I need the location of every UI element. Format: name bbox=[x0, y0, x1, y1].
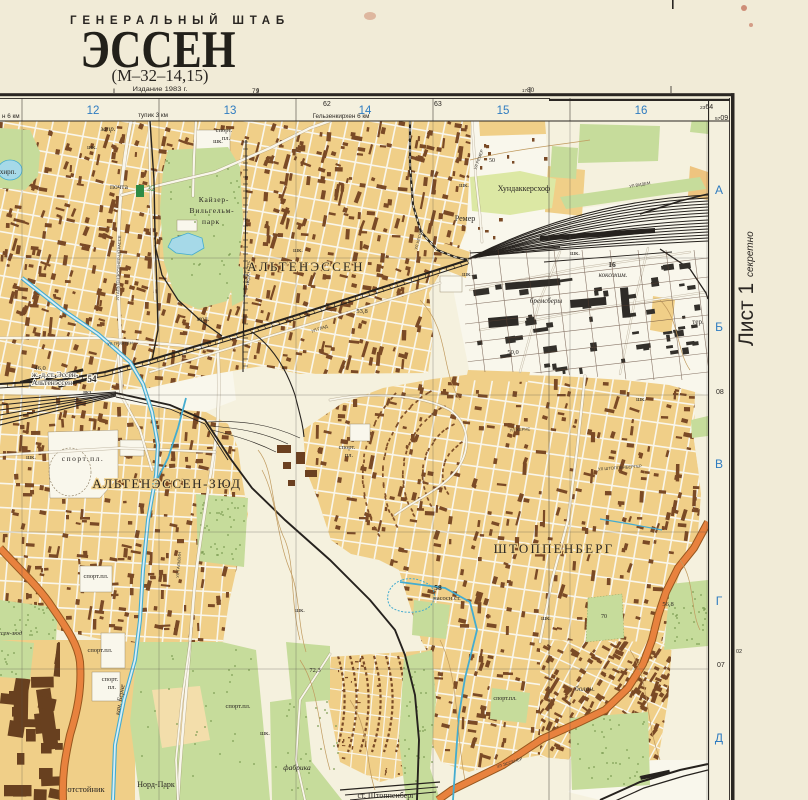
svg-text:Г: Г bbox=[716, 594, 723, 608]
svg-text:08: 08 bbox=[716, 389, 724, 396]
svg-text:АЛЬТЕНЭССЕН: АЛЬТЕНЭССЕН bbox=[247, 259, 364, 274]
svg-text:спорт.пл.: спорт.пл. bbox=[83, 573, 108, 580]
svg-text:Издание 1983 г.: Издание 1983 г. bbox=[133, 86, 188, 93]
svg-text:В: В bbox=[715, 457, 723, 471]
svg-text:58: 58 bbox=[434, 583, 442, 592]
svg-text:запр.: запр. bbox=[100, 125, 116, 133]
svg-text:Кайзер-: Кайзер- bbox=[199, 195, 229, 204]
svg-text:63: 63 bbox=[434, 101, 442, 108]
svg-text:спорт.пл.: спорт.пл. bbox=[493, 696, 517, 702]
svg-text:Хундаккерсхоф: Хундаккерсхоф bbox=[498, 184, 550, 193]
svg-text:насосн.ст.: насосн.ст. bbox=[433, 595, 461, 602]
svg-text:шк.: шк. bbox=[26, 454, 36, 461]
svg-text:шк.: шк. bbox=[462, 271, 472, 278]
svg-text:02: 02 bbox=[736, 649, 742, 655]
svg-text:спорт.: спорт. bbox=[216, 127, 233, 134]
svg-text:пл.: пл. bbox=[108, 684, 117, 691]
svg-text:16: 16 bbox=[635, 105, 648, 117]
svg-text:46,0: 46,0 bbox=[34, 365, 45, 372]
svg-text:72,3: 72,3 bbox=[309, 667, 320, 674]
svg-text:А: А bbox=[715, 183, 723, 197]
svg-text:шк.: шк. bbox=[293, 247, 303, 254]
svg-text:07: 07 bbox=[717, 662, 725, 669]
svg-text:тупик 3 км: тупик 3 км bbox=[138, 112, 168, 119]
svg-text:Д: Д bbox=[715, 731, 723, 745]
svg-text:16: 16 bbox=[608, 260, 616, 269]
svg-text:32: 32 bbox=[147, 184, 155, 193]
svg-text:н 6 км: н 6 км bbox=[2, 113, 20, 120]
svg-text:Норд-Парк: Норд-Парк bbox=[137, 780, 175, 789]
svg-text:50: 50 bbox=[489, 158, 495, 164]
svg-text:50,0: 50,0 bbox=[507, 349, 518, 356]
svg-text:ст. Штоппенберг: ст. Штоппенберг bbox=[357, 791, 415, 800]
svg-text:шк.: шк. bbox=[570, 250, 580, 257]
svg-text:56,8: 56,8 bbox=[662, 601, 673, 608]
svg-text:пл.: пл. bbox=[222, 135, 231, 142]
svg-text:спорт.: спорт. bbox=[339, 444, 356, 451]
svg-text:шк.: шк. bbox=[459, 182, 469, 189]
svg-text:вкз.: вкз. bbox=[83, 390, 93, 396]
svg-text:мол.: мол. bbox=[196, 315, 209, 323]
svg-text:спорт.пл.: спорт.пл. bbox=[225, 703, 250, 710]
svg-text:Альтенэссен: Альтенэссен bbox=[32, 378, 72, 387]
svg-text:спорт.: спорт. bbox=[102, 676, 119, 683]
svg-text:2364: 2364 bbox=[700, 104, 713, 111]
svg-text:бремсберы: бремсберы bbox=[530, 297, 563, 305]
svg-text:1780: 1780 bbox=[522, 87, 535, 94]
svg-text:тер.: тер. bbox=[692, 318, 704, 326]
svg-text:хирп.: хирп. bbox=[0, 168, 16, 176]
svg-text:спорт.пл.: спорт.пл. bbox=[87, 647, 112, 654]
svg-text:коксохим.: коксохим. bbox=[599, 271, 628, 279]
svg-text:15: 15 bbox=[497, 105, 510, 117]
svg-text:ШТОППЕНБЕРГ: ШТОППЕНБЕРГ bbox=[494, 541, 615, 556]
svg-text:АЛЬТЕНЭССЕН-ЗЮД: АЛЬТЕНЭССЕН-ЗЮД bbox=[92, 476, 241, 491]
svg-text:Ремер: Ремер bbox=[455, 214, 476, 223]
svg-text:62: 62 bbox=[323, 101, 331, 108]
svg-text:шк.: шк. bbox=[636, 396, 646, 403]
svg-text:шк.: шк. bbox=[260, 730, 270, 737]
svg-text:Б: Б bbox=[715, 320, 723, 334]
svg-text:53,8: 53,8 bbox=[356, 308, 367, 315]
svg-text:70: 70 bbox=[601, 614, 607, 620]
svg-text:парк: парк bbox=[202, 217, 220, 226]
svg-text:фабрика: фабрика bbox=[283, 763, 311, 772]
svg-text:шк.: шк. bbox=[87, 144, 97, 151]
svg-text:шк.: шк. bbox=[295, 607, 305, 614]
svg-text:шк.: шк. bbox=[541, 615, 551, 622]
svg-text:ссен-зюд: ссен-зюд bbox=[0, 630, 23, 637]
svg-text:пл.: пл. bbox=[345, 452, 354, 459]
svg-text:спорт.пл.: спорт.пл. bbox=[62, 454, 104, 463]
svg-text:12: 12 bbox=[87, 105, 100, 117]
svg-text:отстойник: отстойник bbox=[67, 784, 105, 794]
svg-text:шк.: шк. bbox=[213, 138, 223, 145]
svg-text:Гельзенкирхен 6 км: Гельзенкирхен 6 км bbox=[313, 113, 370, 120]
svg-text:(М–32–14,15): (М–32–14,15) bbox=[112, 66, 209, 85]
svg-text:почта: почта bbox=[110, 182, 129, 191]
svg-text:УЛ ГРУНТЕН: УЛ ГРУНТЕН bbox=[107, 341, 133, 347]
svg-text:54: 54 bbox=[88, 374, 98, 384]
svg-text:болон.: болон. bbox=[575, 684, 595, 693]
svg-text:13: 13 bbox=[224, 105, 237, 117]
svg-text:Вильгельм-: Вильгельм- bbox=[190, 206, 235, 215]
